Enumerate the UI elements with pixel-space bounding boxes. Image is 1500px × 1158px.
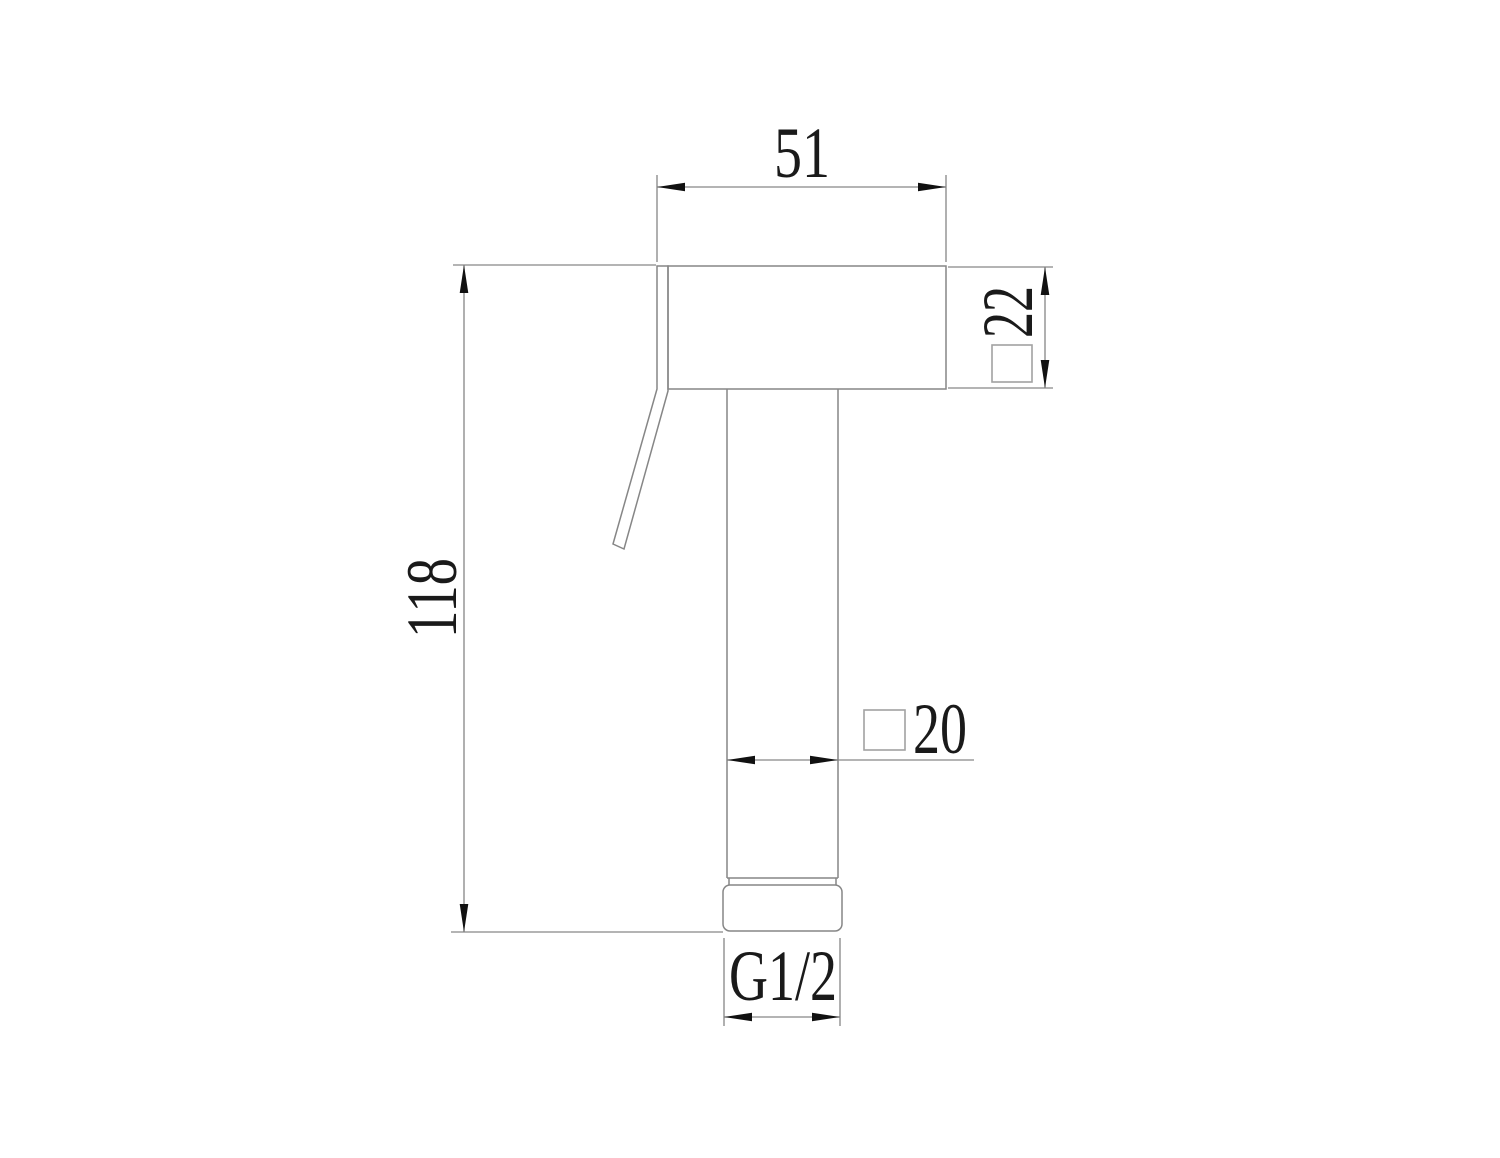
- trigger-lever: [613, 266, 668, 549]
- dim-overall-height: 118: [392, 265, 723, 932]
- thread-size-value: G1/2: [729, 936, 837, 1016]
- square-section-icon: [992, 345, 1032, 382]
- sprayer-dimension-drawing: 51 22 118 20: [0, 0, 1500, 1158]
- arrowhead-right-icon: [810, 756, 838, 765]
- technical-drawing-page: 51 22 118 20: [0, 0, 1500, 1158]
- head-depth-value: 22: [968, 286, 1048, 338]
- arrowhead-left-icon: [727, 756, 755, 765]
- square-section-icon: [864, 710, 905, 750]
- overall-height-value: 118: [392, 558, 472, 638]
- head-width-value: 51: [774, 113, 830, 193]
- inlet-fitting: [723, 885, 842, 931]
- dim-thread-size: G1/2: [724, 936, 840, 1026]
- dim-shaft-width: 20: [727, 689, 974, 769]
- sprayer-shaft: [727, 389, 838, 885]
- dim-head-depth: 22: [948, 267, 1053, 388]
- sprayer-outline: [613, 266, 946, 931]
- arrowhead-down-icon: [1041, 360, 1050, 388]
- arrowhead-left-icon: [657, 183, 685, 192]
- sprayer-head: [668, 266, 946, 389]
- shaft-width-value: 20: [913, 689, 967, 769]
- arrowhead-right-icon: [918, 183, 946, 192]
- dim-head-width: 51: [657, 113, 946, 262]
- arrowhead-down-icon: [460, 904, 469, 932]
- arrowhead-up-icon: [460, 265, 469, 293]
